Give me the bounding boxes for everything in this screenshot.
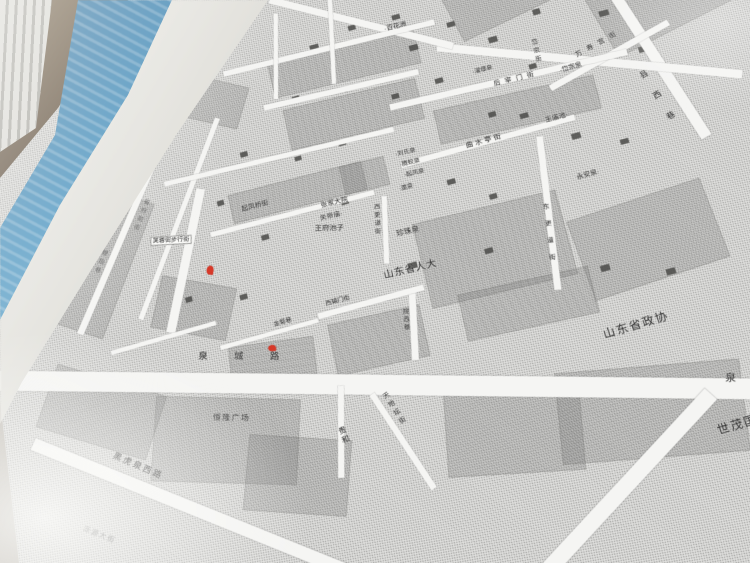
red-marker <box>206 265 214 275</box>
photo-stage: 山东省政协山东省人大珍珠泉王府池子张家大院关帝庙·起凤桥街曲水亭街王庙池··岱宗… <box>0 0 750 563</box>
red-marker <box>268 345 276 352</box>
photo-of-paper-map: { "photo": { "colors": { "red_marker": "… <box>0 0 750 563</box>
